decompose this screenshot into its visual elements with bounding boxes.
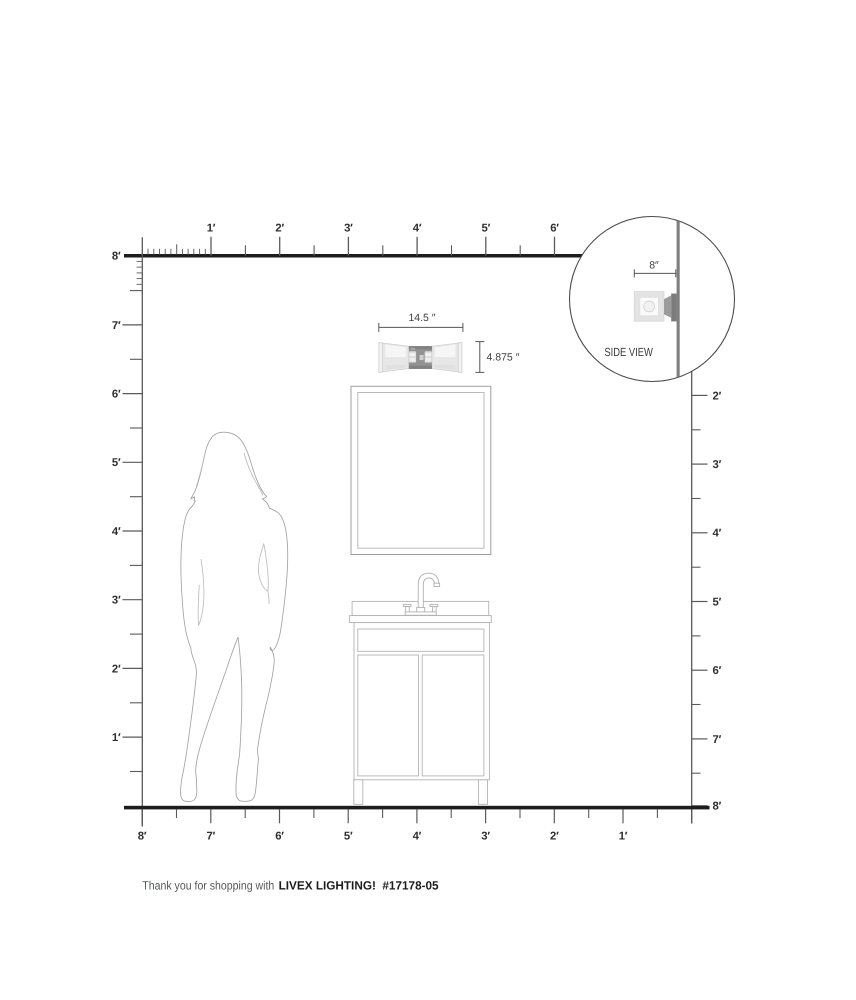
svg-text:14.5 ″: 14.5 ″ — [408, 312, 435, 324]
svg-text:3′: 3′ — [112, 595, 121, 607]
svg-text:8′: 8′ — [713, 801, 722, 813]
svg-text:4.875 ″: 4.875 ″ — [487, 352, 520, 364]
svg-text:LIVEX LIGHTING! #17178-05: LIVEX LIGHTING! #17178-05 — [279, 879, 439, 893]
svg-text:2′: 2′ — [275, 223, 284, 235]
svg-text:3′: 3′ — [344, 223, 353, 235]
svg-text:4′: 4′ — [413, 831, 422, 843]
svg-text:8′: 8′ — [112, 251, 121, 263]
svg-text:6′: 6′ — [713, 665, 722, 677]
svg-text:3′: 3′ — [713, 459, 722, 471]
svg-text:2′: 2′ — [550, 831, 559, 843]
svg-text:2′: 2′ — [112, 663, 121, 675]
svg-text:3′: 3′ — [481, 831, 490, 843]
svg-text:6′: 6′ — [275, 831, 284, 843]
svg-text:1′: 1′ — [207, 223, 216, 235]
svg-text:8′: 8′ — [138, 831, 147, 843]
svg-text:4′: 4′ — [112, 526, 121, 538]
svg-text:7′: 7′ — [207, 831, 216, 843]
svg-text:7′: 7′ — [713, 734, 722, 746]
svg-text:6′: 6′ — [112, 389, 121, 401]
svg-text:2′: 2′ — [713, 390, 722, 402]
svg-text:5′: 5′ — [112, 457, 121, 469]
svg-text:4′: 4′ — [713, 528, 722, 540]
svg-text:1′: 1′ — [619, 831, 628, 843]
svg-text:1′: 1′ — [112, 732, 121, 744]
svg-text:5′: 5′ — [482, 223, 491, 235]
svg-text:4′: 4′ — [413, 223, 422, 235]
svg-text:7′: 7′ — [112, 320, 121, 332]
svg-text:5′: 5′ — [713, 596, 722, 608]
svg-text:Thank you for shopping with: Thank you for shopping with — [142, 879, 274, 893]
svg-text:SIDE VIEW: SIDE VIEW — [604, 345, 653, 359]
svg-text:8″: 8″ — [649, 259, 659, 271]
svg-text:6′: 6′ — [550, 223, 559, 235]
svg-text:5′: 5′ — [344, 831, 353, 843]
